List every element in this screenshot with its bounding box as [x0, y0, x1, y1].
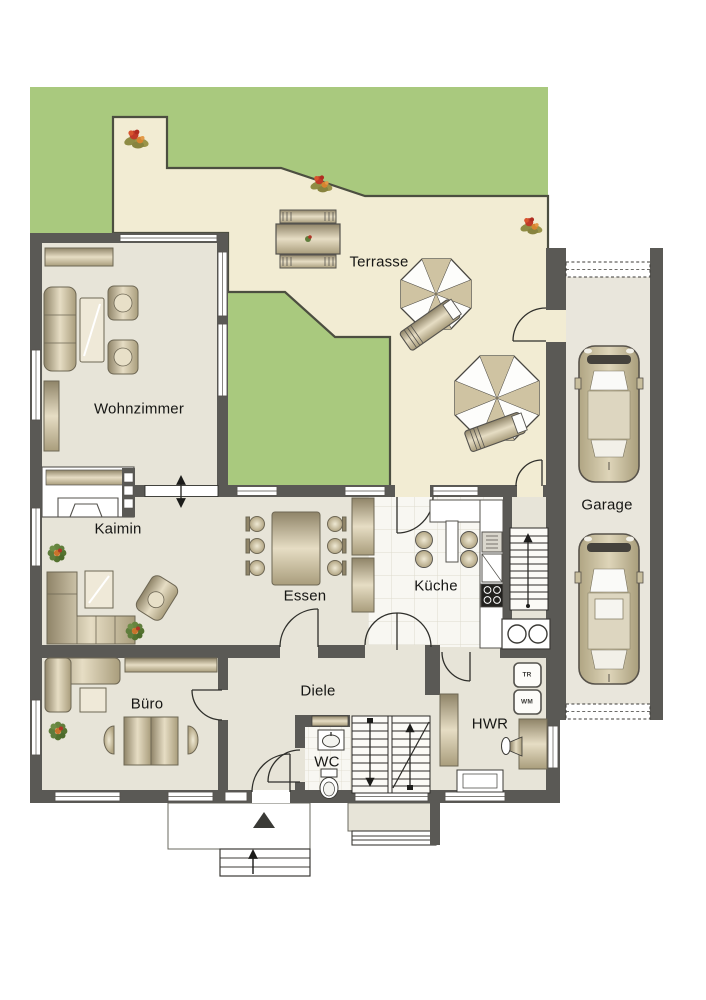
garage-door-bottom — [566, 704, 650, 719]
label-diele: Diele — [300, 683, 335, 700]
garage-car-1 — [575, 346, 643, 482]
garage-car-2 — [575, 534, 643, 684]
dining-cabinets — [352, 498, 374, 612]
plant-3 — [49, 722, 68, 741]
label-washer: WM — [521, 699, 533, 706]
label-hwr: HWR — [472, 716, 508, 733]
label-wohnzimmer: Wohnzimmer — [94, 401, 184, 418]
entrance-porch — [168, 803, 310, 876]
label-essen: Essen — [284, 588, 327, 605]
dining-set — [246, 512, 346, 585]
fireplace — [42, 467, 135, 517]
label-kamin: Kaimin — [94, 521, 141, 538]
plant-1 — [48, 544, 67, 563]
label-wc: WC — [314, 754, 339, 771]
plant-2 — [126, 622, 145, 641]
floor-plan: Terrasse Wohnzimmer Kaimin Essen Küche G… — [0, 0, 706, 1000]
label-kueche: Küche — [414, 578, 458, 595]
stairs-upper — [510, 528, 548, 610]
label-garage: Garage — [581, 497, 632, 514]
terrace-bench-table-set — [276, 210, 340, 268]
label-buero: Büro — [131, 696, 164, 713]
stairs-main — [352, 716, 430, 793]
label-terrasse: Terrasse — [349, 254, 408, 271]
side-landing — [348, 803, 436, 845]
label-dryer: TR — [522, 672, 531, 679]
laundry-sinks — [502, 619, 550, 649]
garage-door-top — [566, 262, 650, 277]
